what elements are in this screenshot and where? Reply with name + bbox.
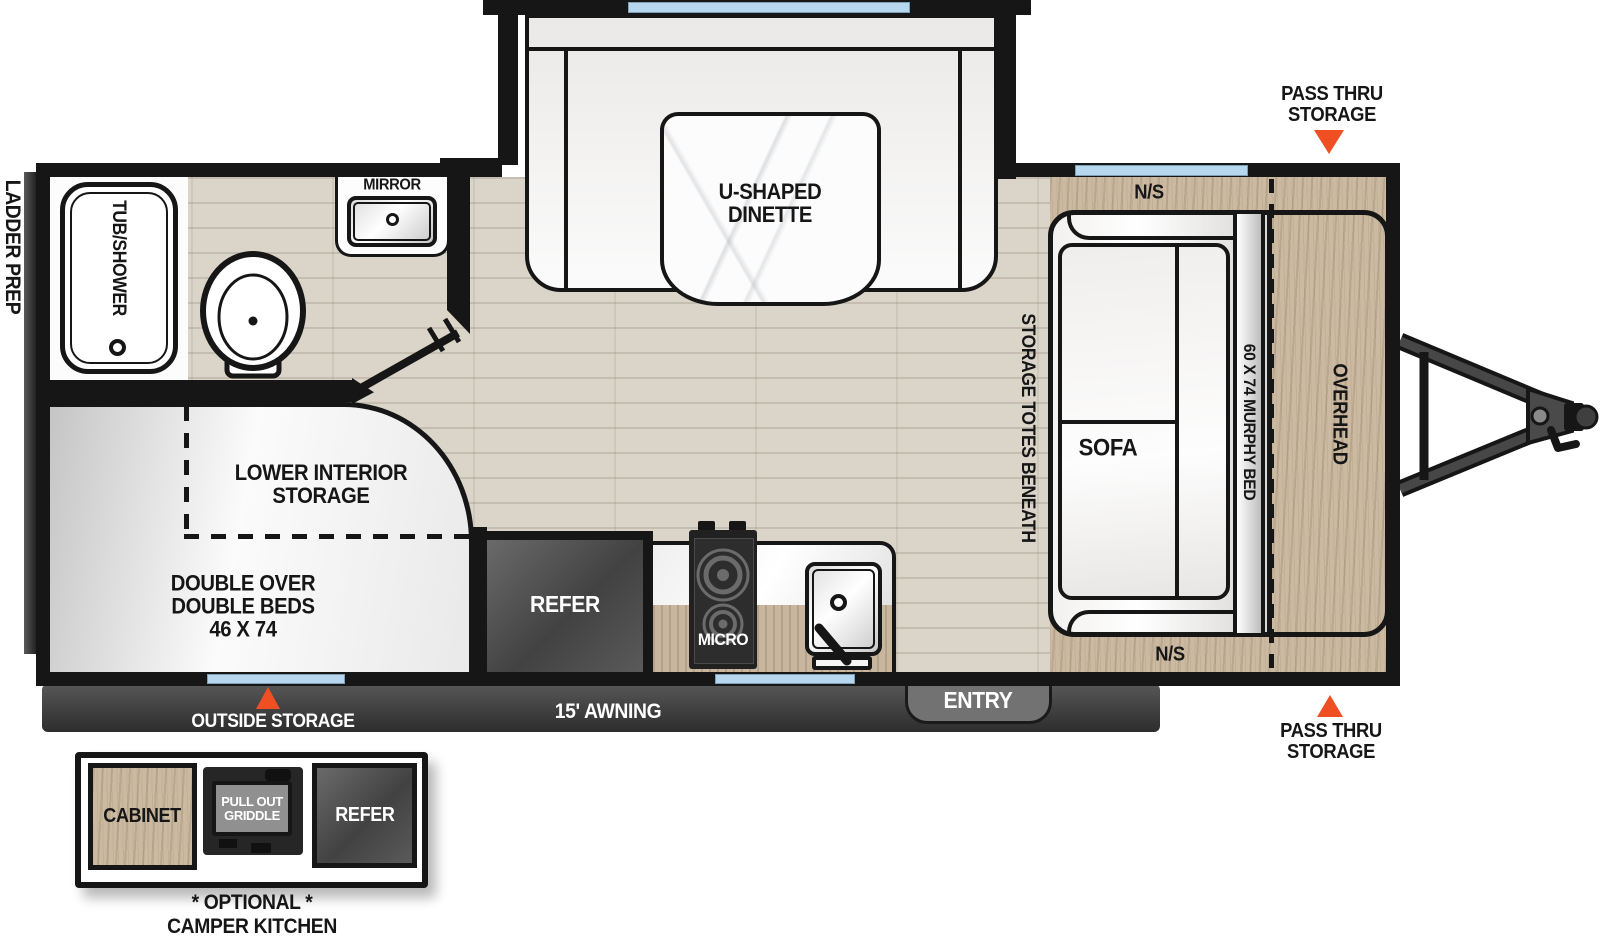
ck-griddle-label-1: PULL OUT	[221, 795, 283, 809]
floorplan-canvas: CABINET PULL OUT GRIDDLE REFER LADDER PR…	[0, 0, 1600, 942]
awning-label: 15' AWNING	[555, 701, 661, 723]
sink-handle	[819, 628, 847, 661]
murphy-bed-label: 60 X 74 MURPHY BED	[1240, 344, 1258, 501]
ck-griddle-foot	[251, 843, 271, 853]
kitchen-window	[715, 674, 855, 684]
ladder-prep-label: LADDER PREP	[1, 180, 23, 314]
ck-griddle-foot	[219, 839, 237, 848]
refer-label: REFER	[530, 592, 600, 616]
dinette-label: U-SHAPED DINETTE	[719, 180, 822, 226]
ns-top-label: N/S	[1134, 183, 1164, 204]
storage-totes-label: STORAGE TOTES BENEATH	[1017, 313, 1037, 542]
camper-kitchen-box: CABINET PULL OUT GRIDDLE REFER	[75, 752, 428, 888]
bedroom-window	[1075, 165, 1248, 176]
top-wall-left	[36, 163, 502, 177]
outside-storage-arrow	[256, 687, 280, 709]
camper-kitchen-title: CAMPER KITCHEN	[167, 916, 337, 938]
ns-bottom-label: N/S	[1155, 645, 1185, 666]
hitch	[1400, 341, 1597, 489]
tub-shower-label: TUB/SHOWER	[108, 200, 128, 316]
ck-cabinet: CABINET	[88, 763, 197, 870]
slideout-flange	[440, 158, 502, 177]
pass-thru-bottom-label: PASS THRU STORAGE	[1280, 721, 1382, 763]
ck-refer-label: REFER	[335, 805, 394, 826]
outside-storage-label: OUTSIDE STORAGE	[191, 712, 354, 732]
toilet	[203, 254, 303, 376]
ck-griddle: PULL OUT GRIDDLE	[203, 767, 303, 855]
dinette-window	[628, 2, 910, 13]
sofa-label: SOFA	[1079, 435, 1138, 460]
overhead-label: OVERHEAD	[1329, 363, 1350, 464]
lower-interior-storage-label: LOWER INTERIOR STORAGE	[235, 461, 408, 507]
pass-thru-top-label: PASS THRU STORAGE	[1281, 84, 1383, 126]
mirror-label: MIRROR	[363, 178, 420, 195]
bunk-window	[207, 674, 345, 684]
entry-label: ENTRY	[943, 688, 1012, 712]
right-wall	[1386, 163, 1400, 686]
slideout-wall-right	[998, 0, 1016, 179]
ck-griddle-plate: PULL OUT GRIDDLE	[212, 781, 292, 836]
ck-griddle-label-2: GRIDDLE	[224, 809, 280, 823]
ck-griddle-handle	[265, 769, 291, 781]
double-beds-label: DOUBLE OVER DOUBLE BEDS 46 X 74	[171, 571, 315, 640]
pass-thru-arrow-top	[1314, 130, 1344, 154]
pass-thru-arrow-bottom	[1317, 695, 1343, 717]
ck-cabinet-label: CABINET	[104, 806, 181, 827]
micro-label: MICRO	[698, 631, 748, 649]
left-wall	[36, 163, 50, 686]
ck-refer: REFER	[312, 763, 417, 868]
burner-icons	[698, 550, 748, 643]
optional-label: * OPTIONAL *	[192, 892, 313, 914]
slideout-wall-left	[498, 0, 518, 165]
bathroom-door	[352, 319, 459, 393]
